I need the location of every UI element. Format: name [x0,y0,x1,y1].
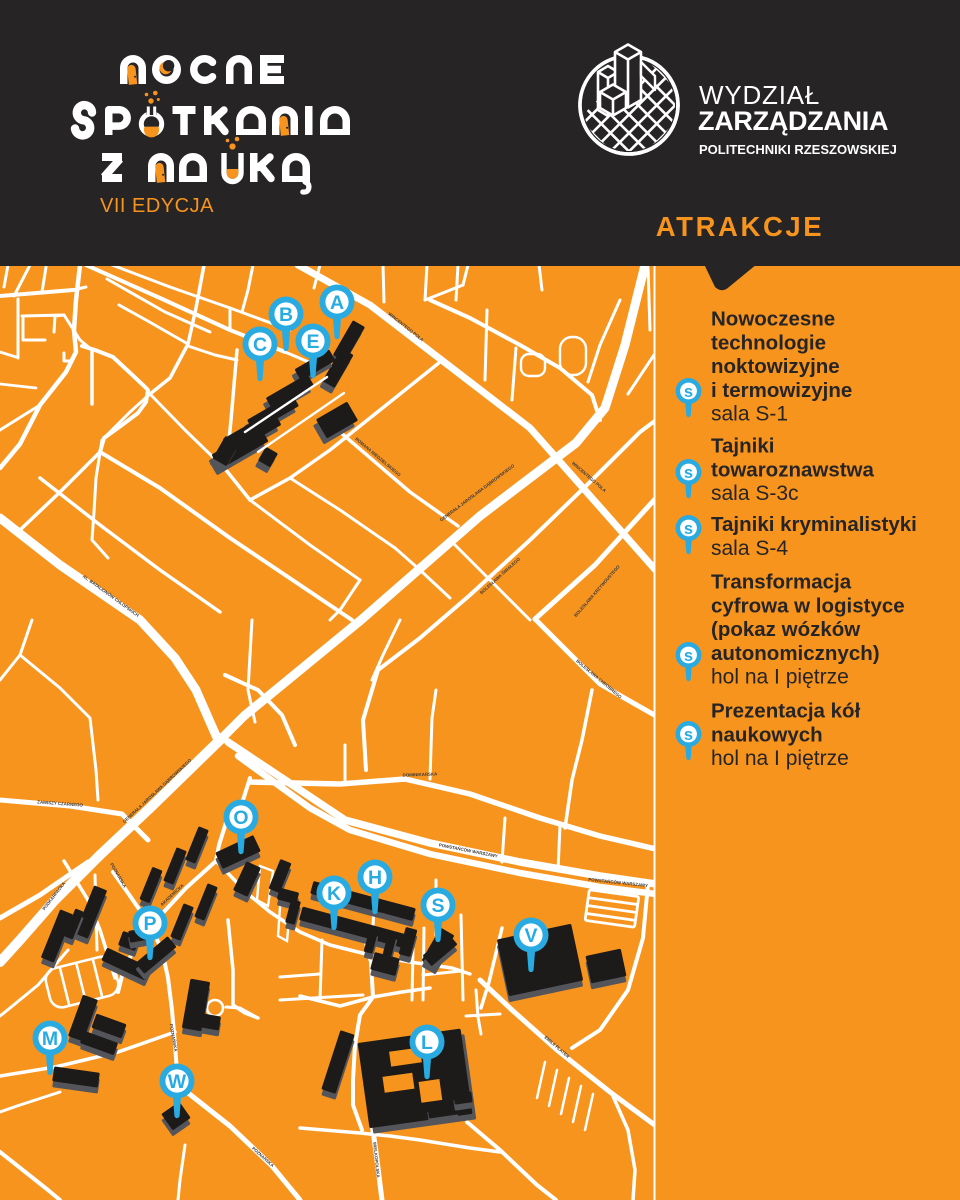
svg-text:Tajniki kryminalistyki: Tajniki kryminalistyki [711,513,917,536]
svg-text:L: L [421,1032,433,1054]
svg-text:s: s [684,726,693,744]
svg-text:sala S-4: sala S-4 [711,537,788,560]
svg-text:VII EDYCJA: VII EDYCJA [100,195,214,217]
svg-text:ZARZĄDZANIA: ZARZĄDZANIA [698,106,888,136]
svg-text:C: C [253,334,267,356]
svg-text:E: E [306,331,319,353]
svg-text:ATRAKCJE: ATRAKCJE [656,211,825,242]
svg-text:hol na I piętrze: hol na I piętrze [711,666,849,689]
svg-text:towaroznawstwa: towaroznawstwa [711,458,874,481]
svg-text:Transformacja: Transformacja [711,571,852,594]
svg-text:Prezentacja kół: Prezentacja kół [711,700,861,723]
svg-text:V: V [524,925,537,947]
svg-text:M: M [42,1028,58,1050]
svg-text:cyfrowa w logistyce: cyfrowa w logistyce [711,594,905,617]
svg-text:noktowizyjne: noktowizyjne [711,355,840,378]
svg-text:Tajniki: Tajniki [711,435,774,458]
svg-text:s: s [684,520,693,538]
svg-text:W: W [168,1071,187,1093]
svg-text:i termowizyjne: i termowizyjne [711,379,852,402]
svg-text:s: s [684,383,693,401]
svg-text:autonomicznych): autonomicznych) [711,642,880,665]
svg-text:sala S-3c: sala S-3c [711,482,799,505]
svg-text:S: S [431,895,444,917]
svg-text:technologie: technologie [711,331,826,354]
svg-text:B: B [279,304,293,326]
svg-text:s: s [684,464,693,482]
svg-text:hol na I piętrze: hol na I piętrze [711,747,849,770]
svg-text:Nowoczesne: Nowoczesne [711,308,835,331]
svg-text:sala S-1: sala S-1 [711,403,788,426]
svg-text:H: H [368,867,382,889]
svg-text:A: A [330,292,344,314]
svg-text:K: K [327,883,341,905]
svg-text:O: O [233,807,248,829]
svg-text:(pokaz wózków: (pokaz wózków [711,618,860,641]
svg-text:naukowych: naukowych [711,723,823,746]
svg-text:POLITECHNIKI RZESZOWSKIEJ: POLITECHNIKI RZESZOWSKIEJ [699,142,897,157]
svg-text:s: s [684,647,693,665]
svg-text:P: P [143,913,156,935]
